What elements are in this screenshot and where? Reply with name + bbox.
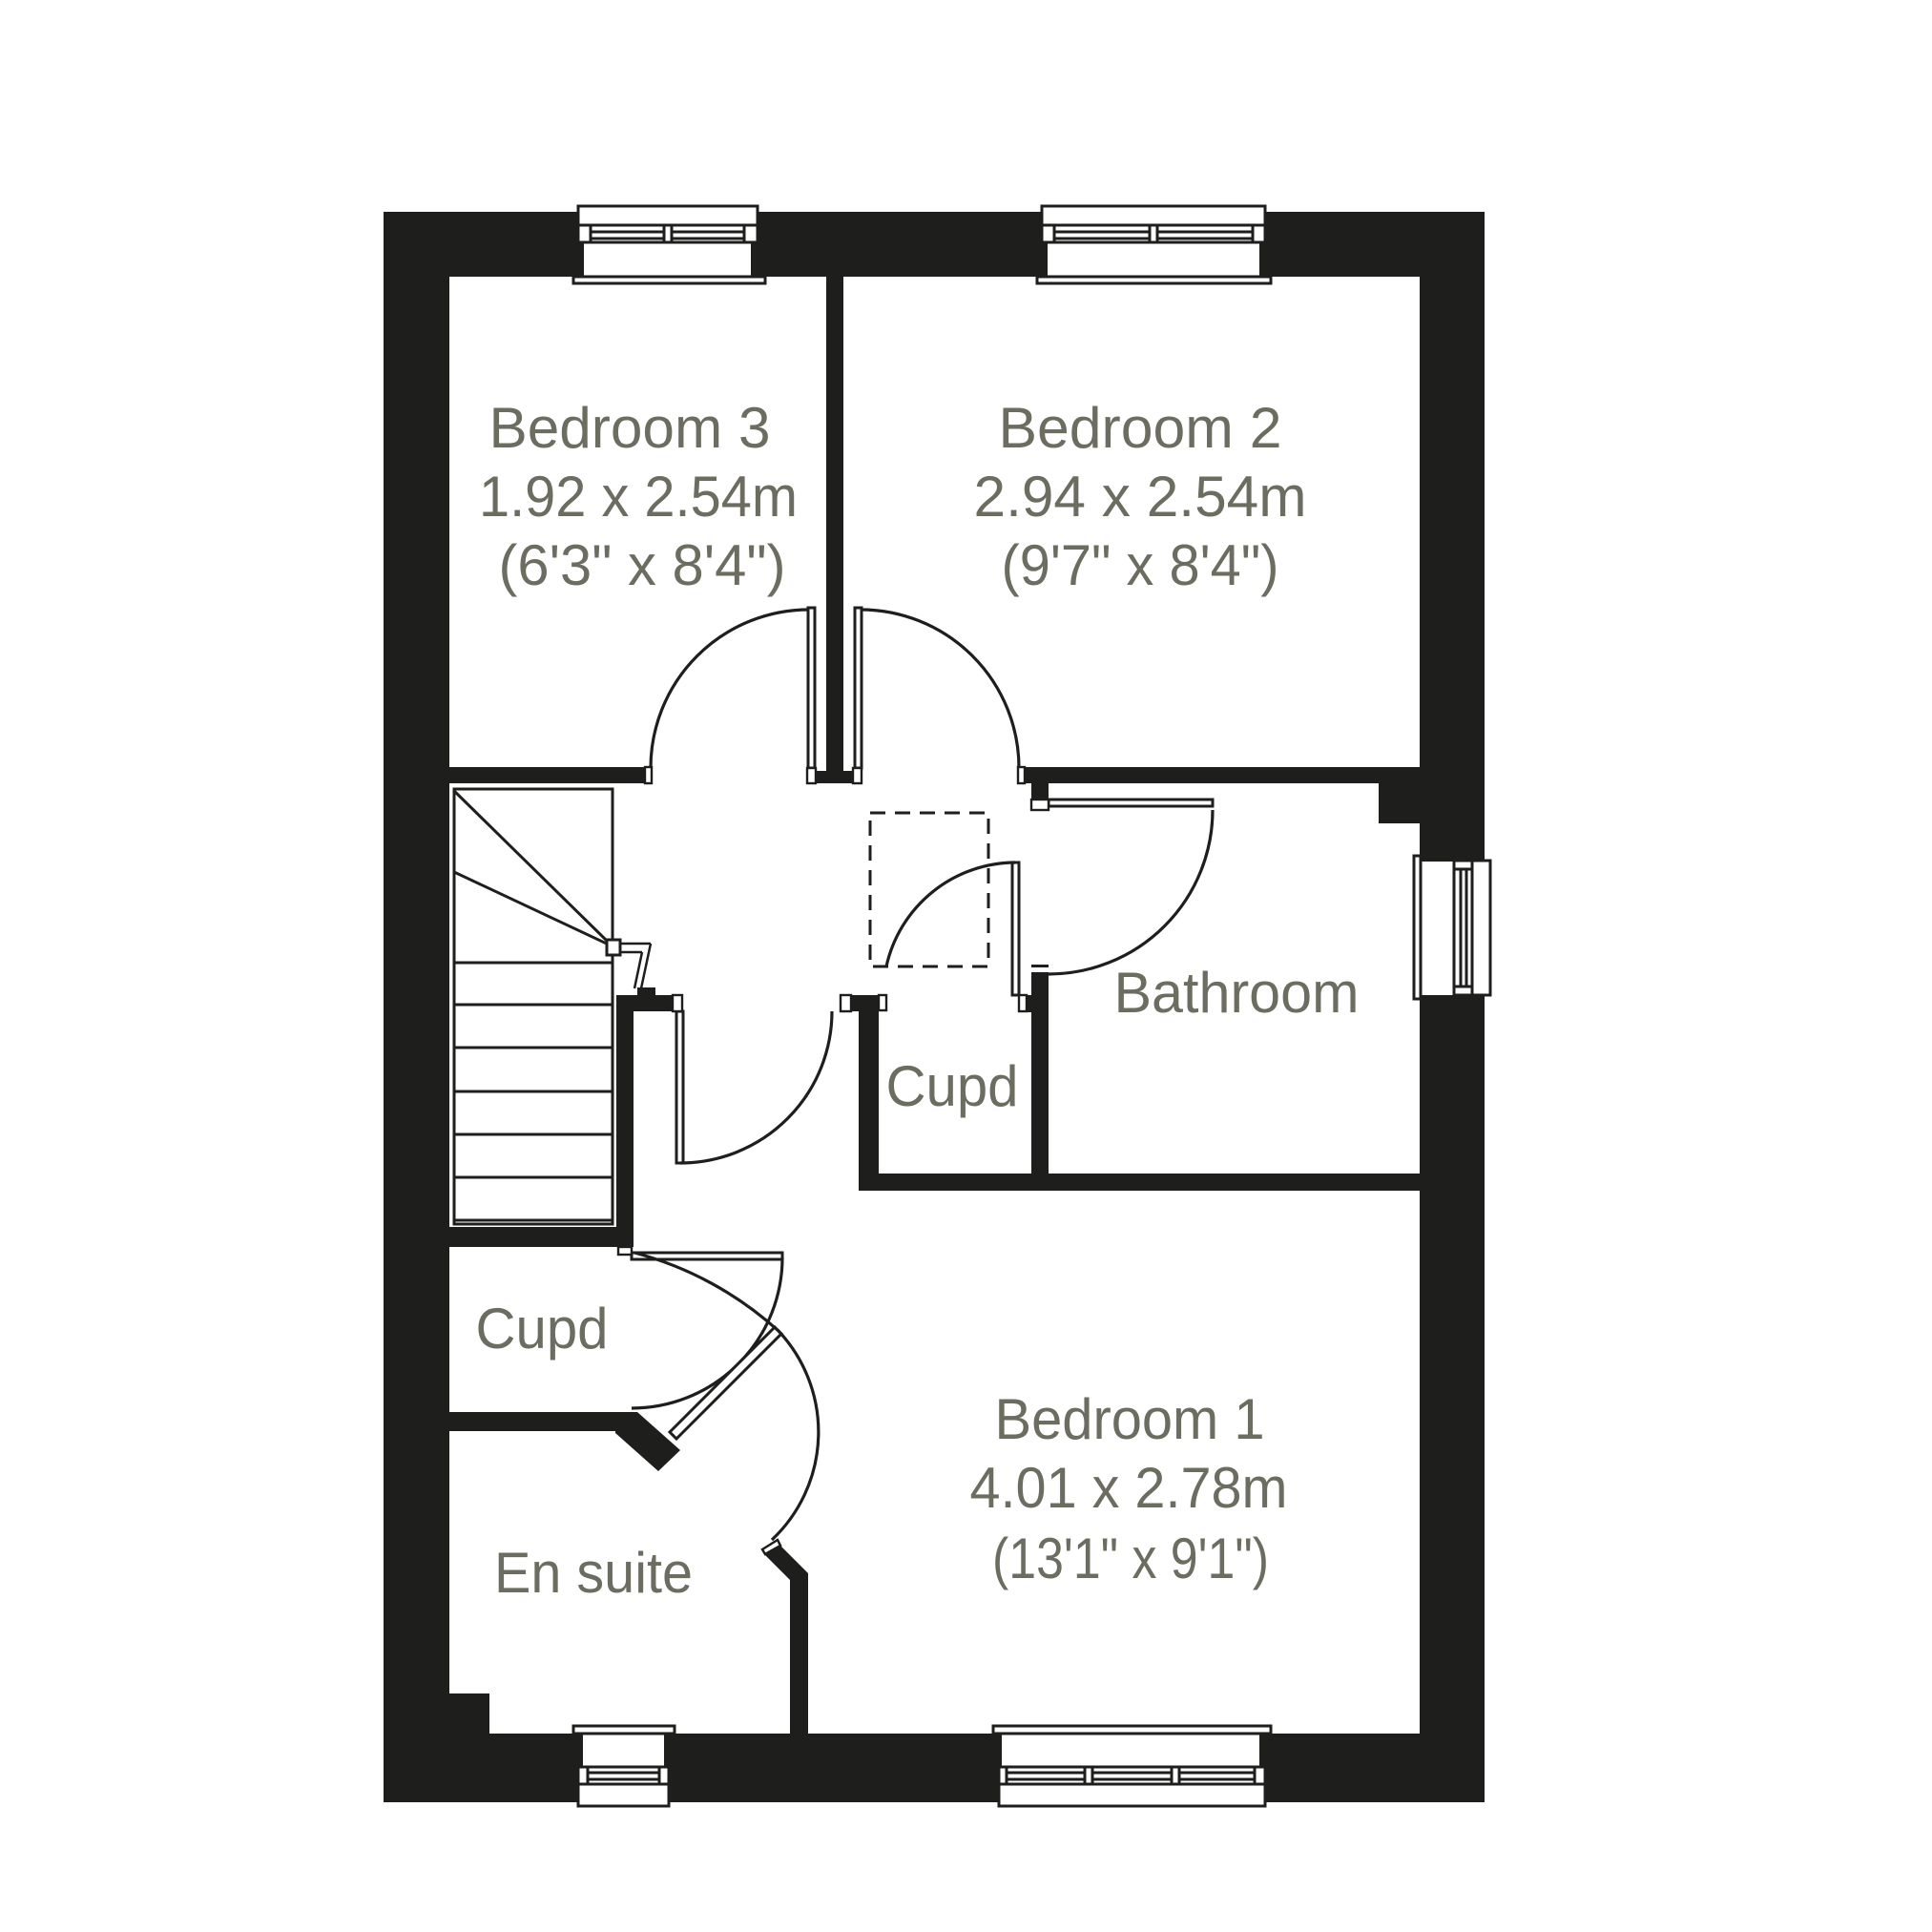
svg-text:En suite: En suite [494,1541,693,1605]
svg-text:(9'7" x 8'4"): (9'7" x 8'4") [1002,533,1279,597]
svg-text:Bedroom 2: Bedroom 2 [999,396,1282,460]
svg-text:Bedroom 1: Bedroom 1 [995,1387,1265,1451]
svg-text:1.92 x 2.54m: 1.92 x 2.54m [479,465,798,529]
svg-text:Cupd: Cupd [886,1054,1019,1118]
svg-text:Cupd: Cupd [476,1297,609,1361]
svg-text:2.94 x 2.54m: 2.94 x 2.54m [974,465,1307,529]
svg-text:(13'1" x 9'1"): (13'1" x 9'1") [992,1527,1269,1590]
svg-text:Bathroom: Bathroom [1114,961,1360,1025]
svg-text:Bedroom 3: Bedroom 3 [489,396,771,460]
svg-text:(6'3" x 8'4"): (6'3" x 8'4") [499,533,786,597]
svg-text:4.01 x 2.78m: 4.01 x 2.78m [970,1456,1288,1520]
